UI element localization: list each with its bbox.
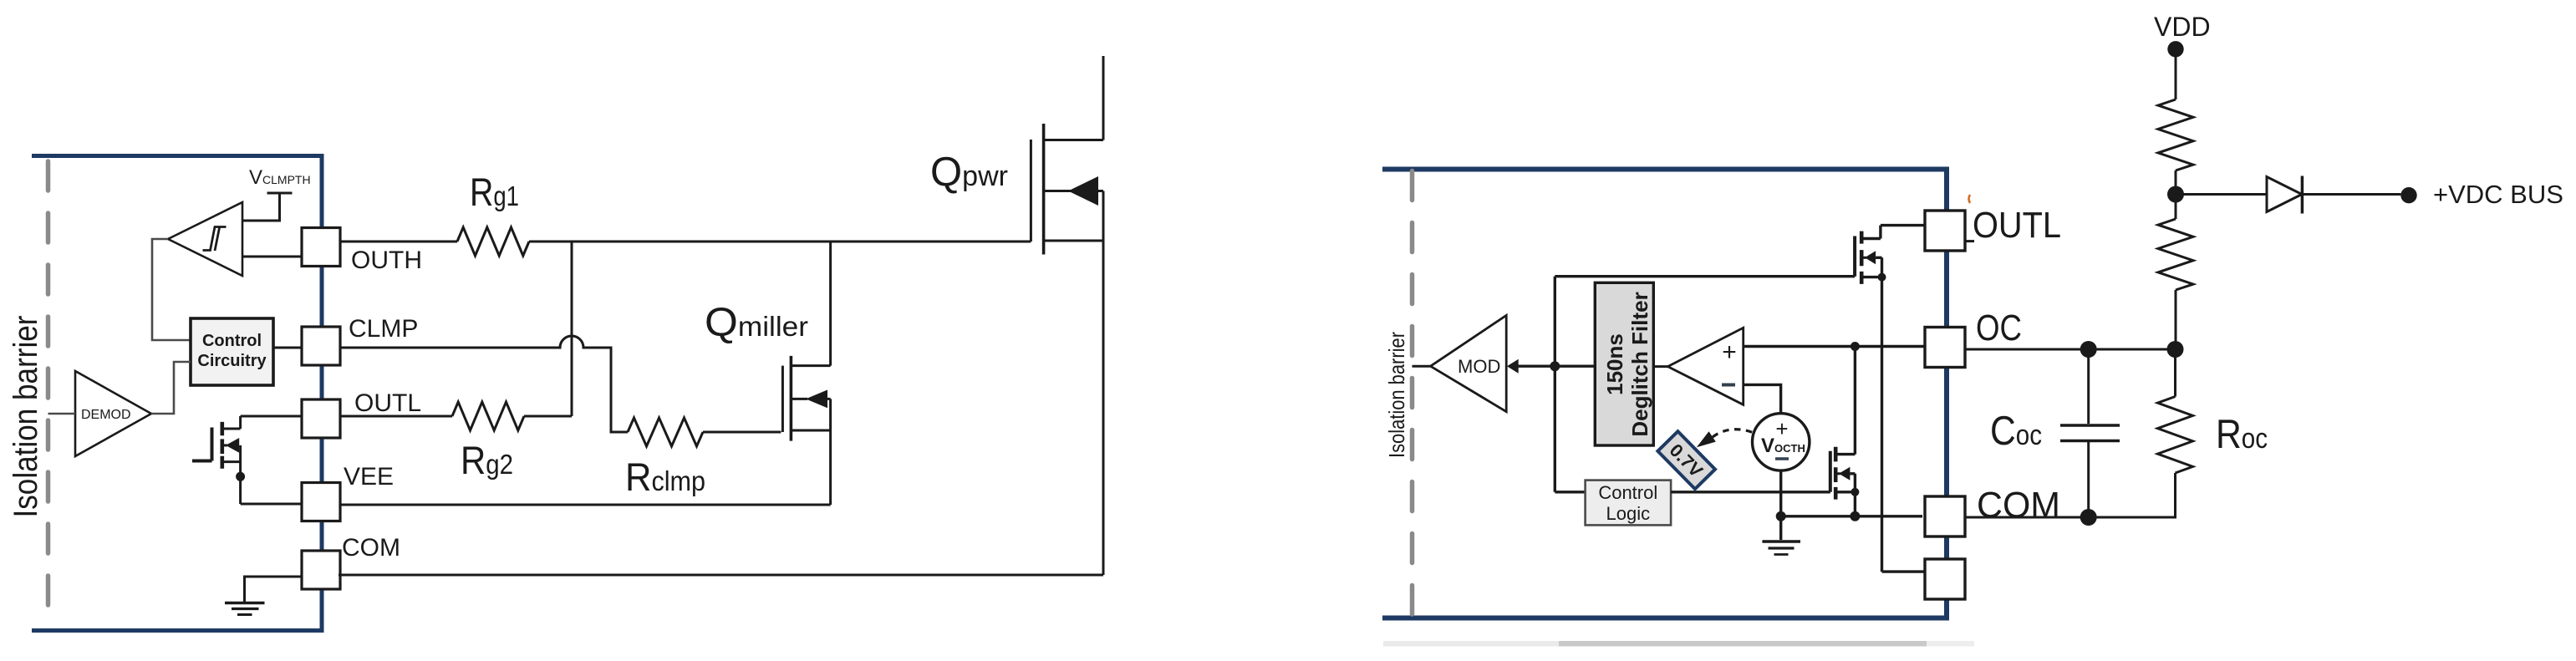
svg-text:OC: OC — [1976, 308, 2022, 348]
svg-text:Isolation barrier: Isolation barrier — [1384, 332, 1409, 458]
svg-text:OUTL: OUTL — [1973, 205, 2061, 246]
svg-text:VEE: VEE — [344, 463, 394, 491]
svg-text:Logic: Logic — [1606, 503, 1651, 524]
svg-text:MOD: MOD — [1458, 356, 1500, 377]
svg-text:OUTL: OUTL — [354, 389, 421, 417]
svg-text:Isolation barrier: Isolation barrier — [8, 316, 44, 518]
svg-text:Control: Control — [1598, 482, 1657, 503]
svg-text:+VDC BUS: +VDC BUS — [2433, 180, 2563, 209]
svg-text:DEMOD: DEMOD — [81, 408, 131, 422]
svg-text:COM: COM — [342, 534, 400, 562]
svg-text:+: + — [1722, 338, 1737, 366]
svg-text:Circuitry: Circuitry — [197, 352, 267, 370]
svg-text:CLMP: CLMP — [349, 315, 418, 343]
svg-text:150ns: 150ns — [1602, 333, 1627, 395]
svg-text:COM: COM — [1977, 485, 2060, 526]
svg-text:+: + — [1775, 416, 1788, 441]
svg-text:VDD: VDD — [2154, 12, 2211, 42]
svg-text:Deglitch Filter: Deglitch Filter — [1627, 292, 1652, 436]
svg-text:OUTH: OUTH — [351, 247, 422, 274]
svg-text:Control: Control — [202, 332, 262, 350]
